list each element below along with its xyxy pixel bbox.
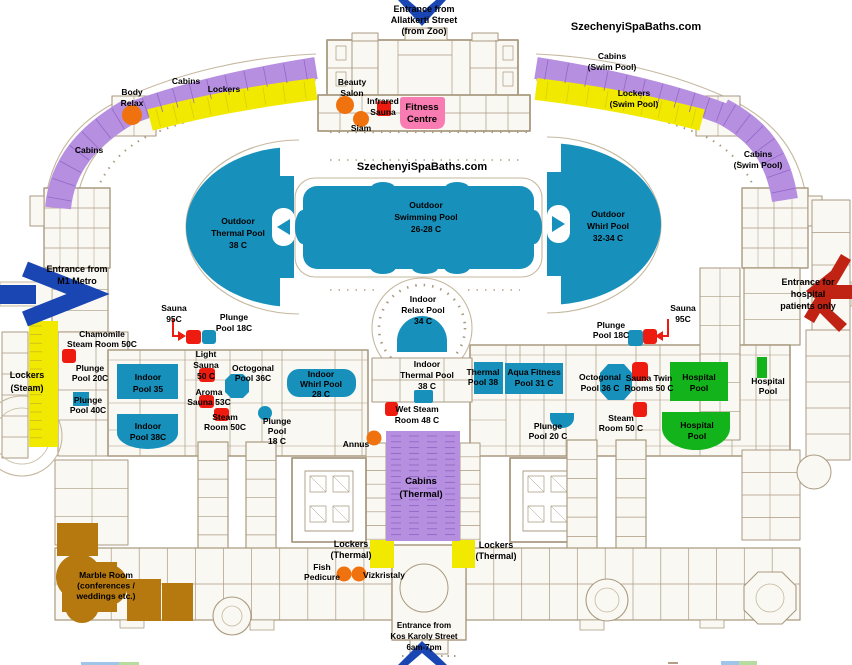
svg-text:Aroma: Aroma (196, 387, 223, 397)
svg-text:Indoor: Indoor (410, 294, 437, 304)
svg-text:Room 50 C: Room 50 C (599, 423, 643, 433)
svg-text:hospital: hospital (791, 289, 826, 299)
svg-text:Hospital: Hospital (680, 420, 714, 430)
svg-text:M1 Metro: M1 Metro (57, 276, 97, 286)
svg-text:34 C: 34 C (414, 316, 432, 326)
svg-text:Pool 18C: Pool 18C (593, 330, 629, 340)
svg-text:Pedicure: Pedicure (304, 572, 340, 582)
svg-text:Steam: Steam (608, 413, 634, 423)
svg-text:Octogonal: Octogonal (232, 363, 274, 373)
svg-text:Thermal: Thermal (466, 367, 499, 377)
svg-text:Sauna: Sauna (670, 303, 696, 313)
svg-text:Plunge: Plunge (597, 320, 626, 330)
svg-text:38 C: 38 C (229, 240, 247, 250)
svg-text:Relax: Relax (121, 98, 144, 108)
svg-text:Sauna: Sauna (193, 360, 219, 370)
svg-text:(conferences /: (conferences / (77, 581, 135, 591)
svg-text:Kos Karoly Street: Kos Karoly Street (390, 632, 457, 641)
svg-text:patients only: patients only (780, 301, 836, 311)
svg-text:Indoor: Indoor (414, 359, 441, 369)
svg-text:Plunge: Plunge (74, 395, 103, 405)
svg-text:Marble Room: Marble Room (79, 570, 133, 580)
svg-text:28 C: 28 C (312, 389, 330, 399)
svg-text:Sauna: Sauna (161, 303, 187, 313)
svg-text:weddings etc.): weddings etc.) (75, 591, 135, 601)
svg-text:Indoor: Indoor (308, 369, 335, 379)
svg-text:Vizkristaly: Vizkristaly (363, 570, 405, 580)
svg-text:Pool 20C: Pool 20C (72, 373, 108, 383)
svg-text:Siam: Siam (351, 123, 372, 133)
svg-text:Plunge: Plunge (534, 421, 563, 431)
svg-text:Pool: Pool (690, 383, 708, 393)
svg-text:Hospital: Hospital (682, 372, 716, 382)
svg-text:Thermal Pool: Thermal Pool (211, 228, 265, 238)
svg-text:Light: Light (196, 349, 217, 359)
svg-text:Room 48 C: Room 48 C (395, 415, 439, 425)
svg-text:Fitness: Fitness (405, 102, 438, 113)
svg-text:Octogonal: Octogonal (579, 372, 621, 382)
svg-text:Aqua Fitness: Aqua Fitness (507, 367, 561, 377)
svg-text:Cabins: Cabins (172, 76, 201, 86)
svg-text:(Thermal): (Thermal) (399, 489, 442, 500)
svg-text:Lockers: Lockers (334, 539, 369, 549)
svg-text:Pool 38C: Pool 38C (130, 432, 166, 442)
svg-text:Pool 40C: Pool 40C (70, 405, 106, 415)
svg-text:Pool: Pool (268, 426, 286, 436)
svg-text:Lockers: Lockers (618, 88, 651, 98)
svg-text:Lockers: Lockers (479, 540, 514, 550)
svg-text:Rooms 50 C: Rooms 50 C (624, 383, 673, 393)
svg-text:Allatkerti Street: Allatkerti Street (391, 15, 458, 25)
svg-text:Wet Steam: Wet Steam (395, 404, 439, 414)
svg-text:Entrance from: Entrance from (397, 621, 451, 630)
svg-text:Sauna Twin: Sauna Twin (626, 373, 673, 383)
svg-text:Cabins: Cabins (405, 476, 437, 487)
svg-text:(Steam): (Steam) (10, 383, 43, 393)
svg-text:Whirl Pool: Whirl Pool (587, 221, 629, 231)
svg-text:Lockers: Lockers (208, 84, 241, 94)
svg-text:Pool 18C: Pool 18C (216, 323, 252, 333)
svg-text:Annus: Annus (343, 439, 370, 449)
svg-text:(Swim Pool): (Swim Pool) (588, 62, 637, 72)
svg-text:Plunge: Plunge (263, 416, 292, 426)
svg-text:Outdoor: Outdoor (221, 216, 255, 226)
svg-text:Pool 38: Pool 38 (468, 377, 499, 387)
svg-text:Fish: Fish (313, 562, 330, 572)
svg-text:Centre: Centre (407, 114, 437, 125)
svg-text:Plunge: Plunge (76, 363, 105, 373)
svg-text:(from Zoo): (from Zoo) (402, 26, 447, 36)
svg-text:Lockers: Lockers (10, 370, 45, 380)
svg-text:Cabins: Cabins (744, 149, 773, 159)
svg-text:26-28 C: 26-28 C (411, 224, 441, 234)
svg-text:Infrared: Infrared (367, 96, 399, 106)
svg-text:Chamomile: Chamomile (79, 329, 125, 339)
svg-text:Room 50C: Room 50C (204, 422, 246, 432)
svg-text:Pool: Pool (759, 386, 777, 396)
svg-text:Pool 36C: Pool 36C (235, 373, 271, 383)
svg-text:Entrance from: Entrance from (46, 264, 107, 274)
svg-text:Pool 20 C: Pool 20 C (529, 431, 568, 441)
svg-text:Plunge: Plunge (220, 312, 249, 322)
svg-text:Sauna: Sauna (370, 107, 396, 117)
svg-text:Entrance from: Entrance from (393, 4, 454, 14)
svg-text:(Swim Pool): (Swim Pool) (610, 99, 659, 109)
svg-text:Beauty: Beauty (338, 77, 367, 87)
svg-text:6am-7pm: 6am-7pm (406, 643, 441, 652)
svg-text:Thermal Pool: Thermal Pool (400, 370, 454, 380)
svg-text:(Thermal): (Thermal) (475, 551, 516, 561)
svg-text:38 C: 38 C (418, 381, 436, 391)
svg-text:Swimming Pool: Swimming Pool (394, 212, 457, 222)
svg-text:SzechenyiSpaBaths.com: SzechenyiSpaBaths.com (571, 21, 701, 33)
svg-text:Relax Pool: Relax Pool (401, 305, 444, 315)
svg-text:(Swim Pool): (Swim Pool) (734, 160, 783, 170)
svg-text:18 C: 18 C (268, 436, 286, 446)
svg-text:Salon: Salon (340, 88, 363, 98)
svg-text:Steam: Steam (212, 412, 238, 422)
svg-text:Indoor: Indoor (135, 421, 162, 431)
svg-text:Pool 36 C: Pool 36 C (581, 383, 620, 393)
svg-text:Outdoor: Outdoor (591, 209, 625, 219)
svg-text:Pool: Pool (688, 431, 706, 441)
svg-text:Outdoor: Outdoor (409, 200, 443, 210)
svg-text:Cabins: Cabins (75, 145, 104, 155)
svg-text:SzechenyiSpaBaths.com: SzechenyiSpaBaths.com (357, 161, 487, 173)
svg-text:Cabins: Cabins (598, 51, 627, 61)
svg-text:95C: 95C (166, 314, 182, 324)
svg-text:Sauna 53C: Sauna 53C (187, 397, 230, 407)
svg-text:(Thermal): (Thermal) (330, 550, 371, 560)
svg-text:50 C: 50 C (197, 371, 215, 381)
svg-text:Hospital: Hospital (751, 376, 785, 386)
svg-text:32-34 C: 32-34 C (593, 233, 623, 243)
svg-text:Pool 31 C: Pool 31 C (515, 378, 554, 388)
svg-text:Indoor: Indoor (135, 372, 162, 382)
svg-text:Body: Body (121, 87, 143, 97)
svg-text:95C: 95C (675, 314, 691, 324)
svg-text:Steam Room 50C: Steam Room 50C (67, 339, 137, 349)
svg-text:Entrance for: Entrance for (781, 277, 835, 287)
svg-text:Pool 35: Pool 35 (133, 384, 164, 394)
svg-text:Whirl Pool: Whirl Pool (300, 379, 342, 389)
